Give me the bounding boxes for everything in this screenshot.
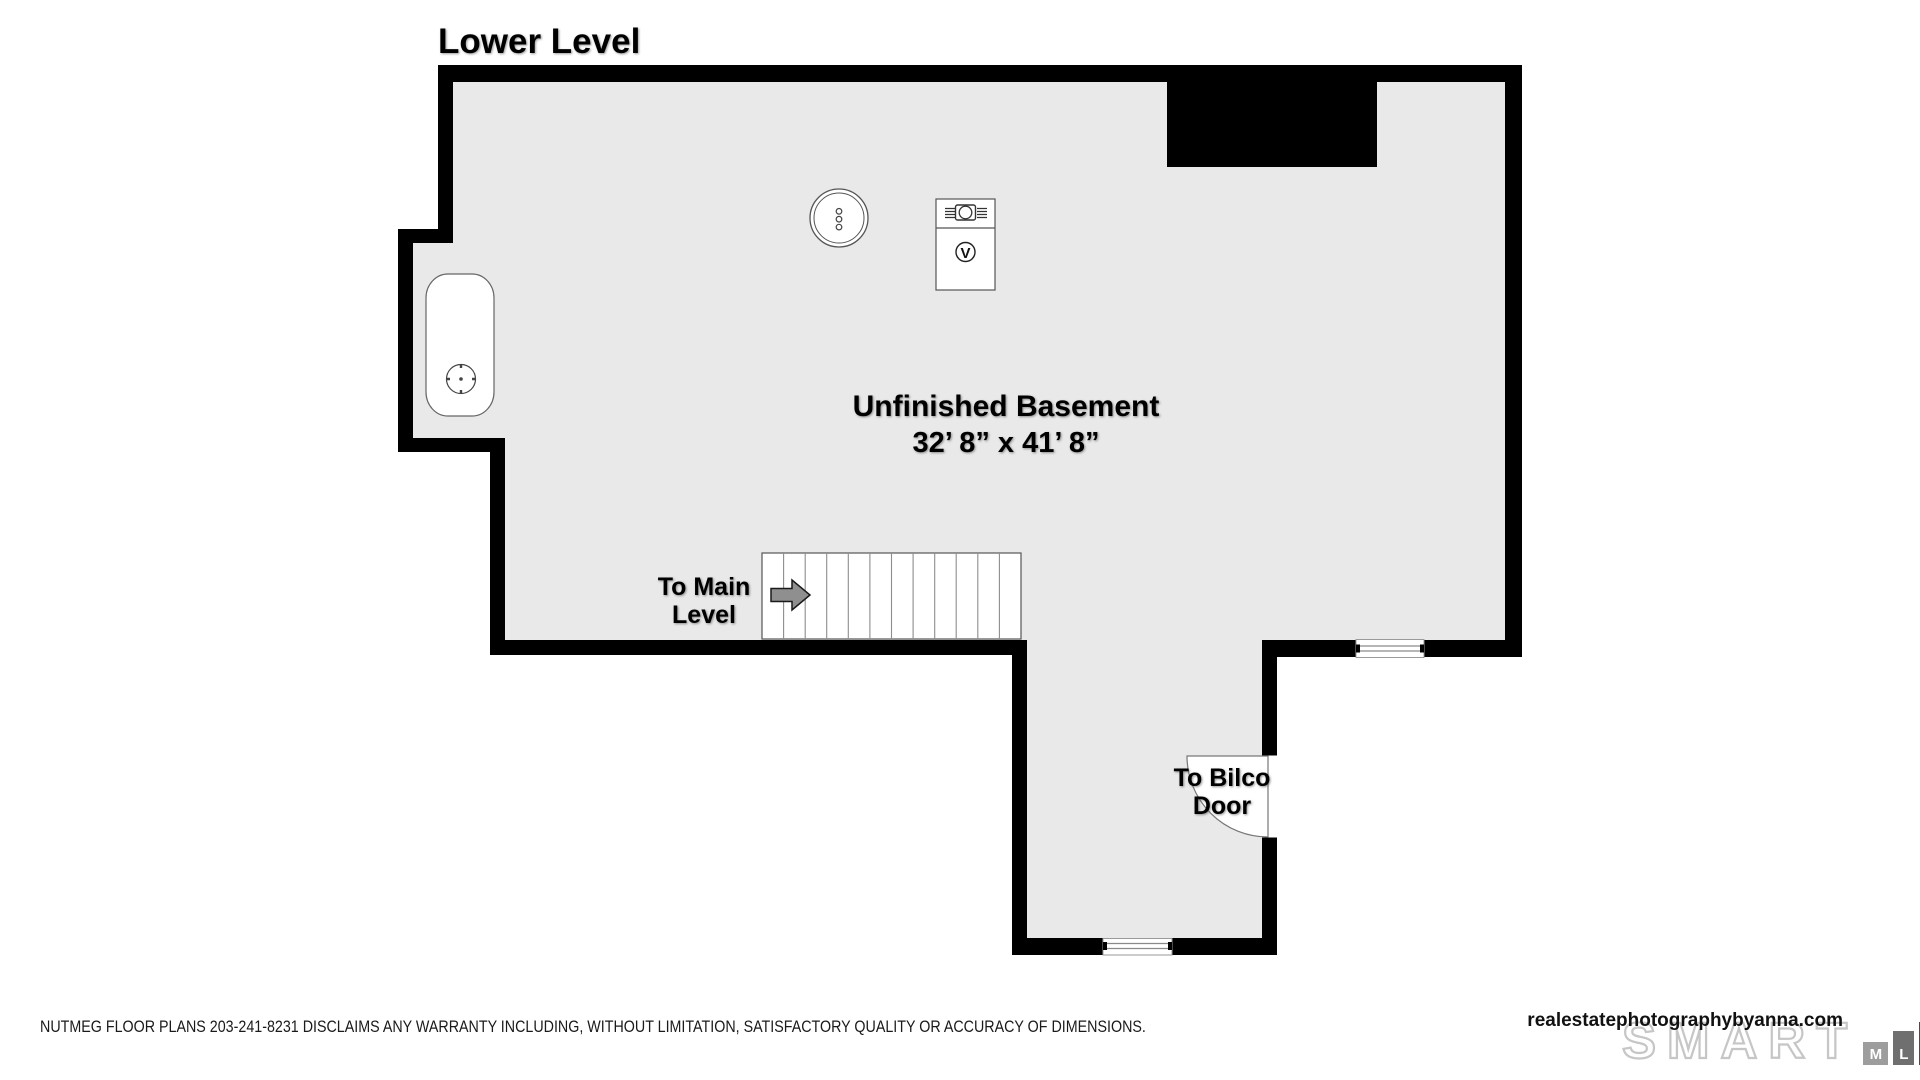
chimney-block: [1167, 65, 1377, 167]
wall-left-upper: [438, 65, 453, 243]
bilco-label-line1: To Bilco: [1147, 764, 1297, 792]
room-name: Unfinished Basement: [840, 389, 1172, 425]
wall-bumpout-bottom: [398, 438, 505, 452]
wall-stem-left: [1012, 640, 1027, 955]
floor-plan-page: V Lower Level Unfinished Basement 32’ 8”…: [0, 0, 1920, 1080]
stairs-label-line1: To Main: [628, 573, 780, 601]
wall-right: [1505, 65, 1522, 657]
floor-plan-drawing: V: [0, 0, 1920, 1080]
bilco-door-label: To Bilco Door: [1147, 764, 1297, 820]
wall-bumpout-left: [398, 229, 413, 452]
wall-bottom-main: [490, 640, 1027, 655]
wall-left-lower: [490, 438, 505, 655]
room-dimensions: 32’ 8” x 41’ 8”: [840, 425, 1172, 461]
room-label: Unfinished Basement 32’ 8” x 41’ 8”: [840, 389, 1172, 461]
stairs-label-line2: Level: [628, 601, 780, 629]
page-title: Lower Level: [438, 22, 640, 62]
mls-box-m: M: [1863, 1042, 1888, 1065]
photographer-website: realestatephotographybyanna.com: [1527, 1010, 1843, 1032]
mls-box-l: L: [1893, 1031, 1914, 1065]
pump-circle-icon: [810, 189, 868, 247]
window-stem-bottom: [1103, 939, 1172, 956]
stairs: [762, 553, 1021, 639]
disclaimer-text: NUTMEG FLOOR PLANS 203-241-8231 DISCLAIM…: [40, 1017, 1146, 1037]
furnace-icon: V: [936, 199, 995, 290]
stairs-label: To Main Level: [628, 573, 780, 629]
tank-icon: [426, 274, 494, 416]
window-right: [1356, 640, 1424, 658]
bilco-label-line2: Door: [1147, 792, 1297, 820]
furnace-valve-glyph: V: [960, 245, 970, 262]
